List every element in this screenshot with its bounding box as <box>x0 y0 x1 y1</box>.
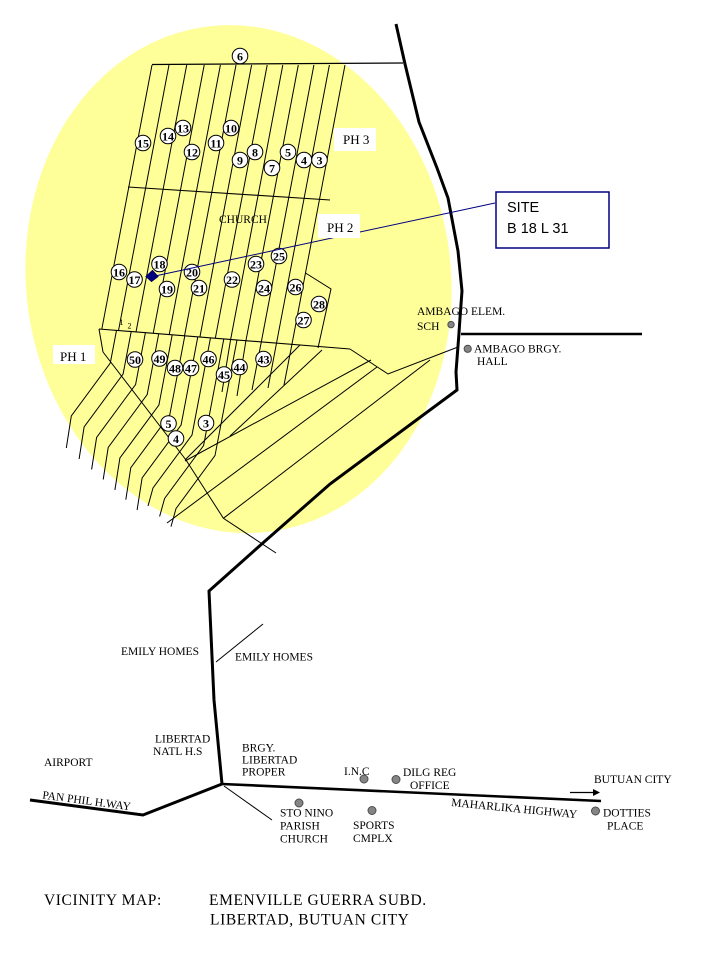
svg-text:BUTUAN CITY: BUTUAN CITY <box>594 774 672 786</box>
svg-text:BRGY.: BRGY. <box>242 743 275 755</box>
svg-text:VICINITY MAP:: VICINITY MAP: <box>44 892 162 909</box>
svg-text:1: 1 <box>120 318 124 327</box>
svg-text:22: 22 <box>226 273 238 287</box>
svg-text:15: 15 <box>137 136 149 150</box>
svg-text:48: 48 <box>169 361 181 375</box>
svg-text:EMILY HOMES: EMILY HOMES <box>121 646 199 658</box>
svg-text:7: 7 <box>269 161 275 175</box>
svg-text:44: 44 <box>234 360 246 374</box>
svg-text:24: 24 <box>258 281 270 295</box>
svg-text:PH 3: PH 3 <box>343 132 369 147</box>
svg-text:13: 13 <box>177 121 189 135</box>
svg-text:HALL: HALL <box>477 356 508 368</box>
svg-text:EMENVILLE GUERRA SUBD.: EMENVILLE GUERRA SUBD. <box>209 892 427 909</box>
svg-text:B 18 L 31: B 18 L 31 <box>507 221 569 237</box>
svg-text:SPORTS: SPORTS <box>353 820 395 832</box>
svg-text:43: 43 <box>258 352 270 366</box>
svg-text:CMPLX: CMPLX <box>353 833 393 845</box>
svg-text:9: 9 <box>237 153 243 167</box>
svg-text:AMBAGO ELEM.: AMBAGO ELEM. <box>417 306 505 318</box>
svg-text:11: 11 <box>210 136 221 150</box>
svg-text:5: 5 <box>166 417 172 431</box>
svg-text:10: 10 <box>225 121 237 135</box>
svg-text:5: 5 <box>285 145 291 159</box>
svg-text:19: 19 <box>161 282 173 296</box>
svg-text:3: 3 <box>317 153 323 167</box>
svg-text:AMBAGO BRGY.: AMBAGO BRGY. <box>474 344 561 356</box>
svg-text:SCH: SCH <box>417 321 439 333</box>
svg-text:SITE: SITE <box>507 200 540 216</box>
svg-text:LIBERTAD, BUTUAN CITY: LIBERTAD, BUTUAN CITY <box>210 912 409 929</box>
svg-text:PH 1: PH 1 <box>60 349 86 364</box>
svg-text:DOTTIES: DOTTIES <box>603 808 651 820</box>
svg-text:14: 14 <box>162 129 174 143</box>
svg-text:25: 25 <box>273 249 285 263</box>
svg-text:49: 49 <box>154 352 166 366</box>
svg-text:12: 12 <box>186 145 198 159</box>
svg-text:LIBERTAD: LIBERTAD <box>242 755 297 767</box>
svg-text:46: 46 <box>203 352 215 366</box>
svg-text:16: 16 <box>113 265 125 279</box>
svg-text:CHURCH: CHURCH <box>280 834 328 846</box>
svg-text:45: 45 <box>218 368 230 382</box>
svg-text:18: 18 <box>154 257 166 271</box>
svg-text:4: 4 <box>301 153 307 167</box>
svg-text:26: 26 <box>290 280 302 294</box>
svg-text:27: 27 <box>298 313 310 327</box>
svg-text:PH 2: PH 2 <box>327 220 353 235</box>
svg-text:I.N.C: I.N.C <box>344 766 370 778</box>
svg-text:OFFICE: OFFICE <box>410 780 450 792</box>
svg-text:PROPER: PROPER <box>242 767 286 779</box>
svg-text:AIRPORT: AIRPORT <box>44 757 93 769</box>
svg-text:28: 28 <box>313 297 325 311</box>
svg-text:PLACE: PLACE <box>607 821 643 833</box>
svg-text:CHURCH: CHURCH <box>219 214 267 226</box>
svg-text:21: 21 <box>193 281 205 295</box>
svg-text:8: 8 <box>252 145 258 159</box>
svg-text:6: 6 <box>237 49 243 63</box>
svg-text:3: 3 <box>203 416 209 430</box>
svg-text:STO NINO: STO NINO <box>280 808 333 820</box>
svg-text:47: 47 <box>185 361 197 375</box>
svg-text:NATL H.S: NATL H.S <box>153 746 202 758</box>
svg-text:4: 4 <box>173 432 179 446</box>
svg-text:PARISH: PARISH <box>280 821 320 833</box>
svg-text:50: 50 <box>129 353 141 367</box>
svg-text:EMILY HOMES: EMILY HOMES <box>235 652 313 664</box>
svg-text:17: 17 <box>129 273 141 287</box>
svg-text:23: 23 <box>250 257 262 271</box>
svg-text:DILG REG: DILG REG <box>403 767 456 779</box>
svg-text:2: 2 <box>128 322 132 331</box>
svg-text:LIBERTAD: LIBERTAD <box>155 734 210 746</box>
